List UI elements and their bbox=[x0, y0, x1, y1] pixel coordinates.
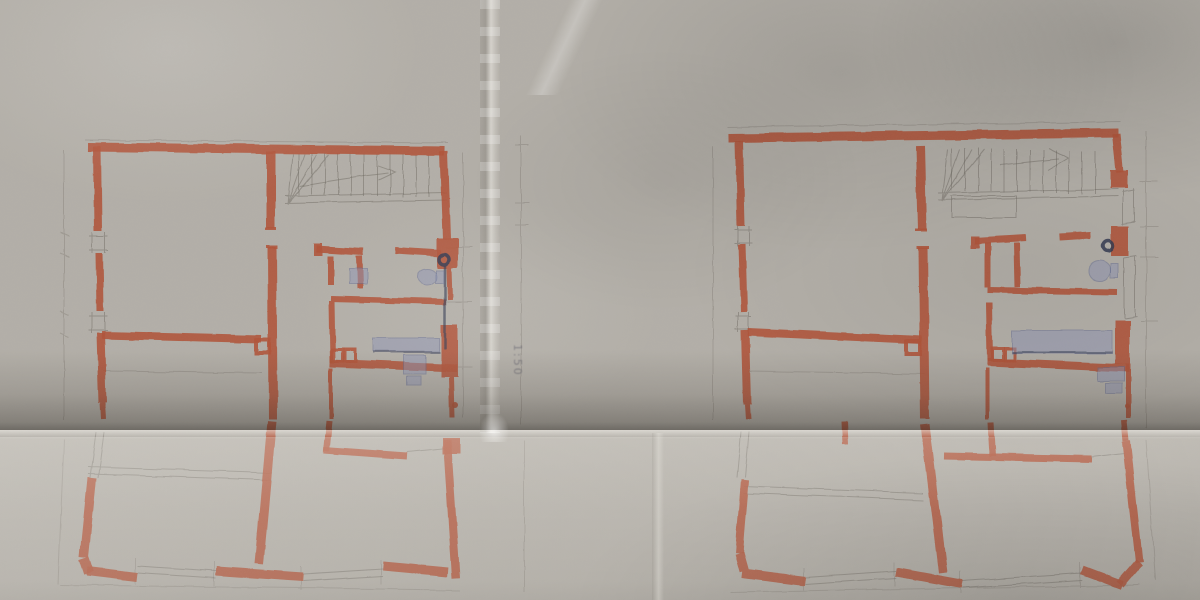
paper-grain bbox=[0, 0, 1200, 600]
scale-annotation: 1:50 bbox=[511, 344, 524, 377]
folded-blueprint-photo: 1:50 bbox=[0, 0, 1200, 600]
floor-plan-drawing bbox=[0, 0, 1200, 600]
